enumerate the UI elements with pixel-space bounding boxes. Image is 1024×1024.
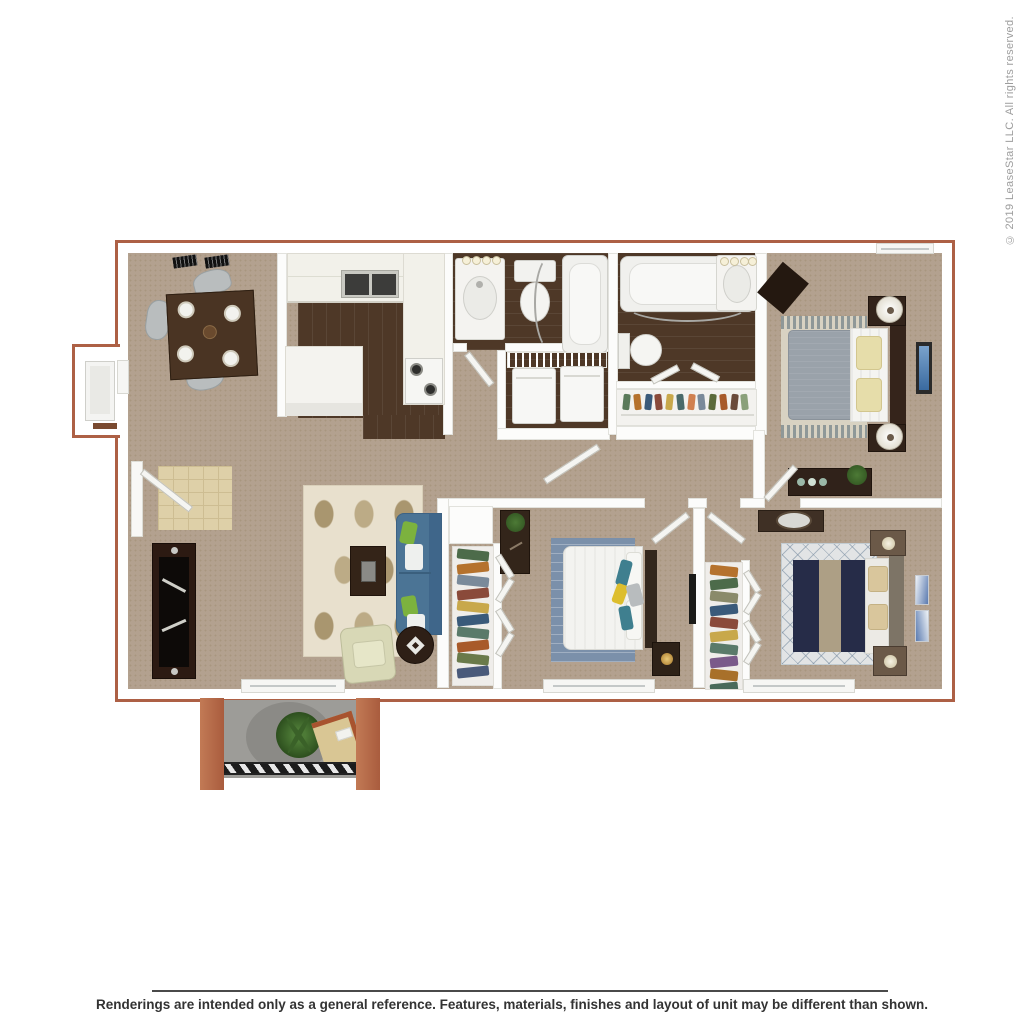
bed-runner: [819, 560, 841, 652]
copyright-text: © 2019 LeaseStar LLC. All rights reserve…: [1004, 16, 1016, 245]
vanity-lights: [482, 256, 491, 265]
vanity-lights: [492, 256, 501, 265]
master-window: [876, 243, 934, 254]
table-lamp: [882, 537, 895, 550]
storage-closet-exterior: [72, 344, 120, 438]
sofa: [396, 513, 442, 635]
footer-divider: [152, 990, 888, 992]
coffee-table: [350, 546, 386, 596]
disclaimer-text: Renderings are intended only as a genera…: [0, 997, 1024, 1012]
shower-curtain-rod: [534, 255, 568, 351]
wall-art: [916, 342, 932, 394]
throw-pillow: [399, 521, 418, 546]
bedroom2-headboard: [645, 550, 657, 648]
bedroom3-bed: [841, 560, 865, 652]
vanity-lights: [730, 257, 739, 266]
plant: [506, 513, 525, 532]
wall-art: [915, 575, 929, 605]
bathtub: [562, 255, 608, 353]
bedroom3-closet: [705, 562, 743, 690]
centerpiece: [202, 325, 217, 340]
patio-sliding-door: [241, 679, 345, 693]
vanity-lights: [720, 257, 729, 266]
closet-sliding-front: [616, 426, 757, 440]
throw-blanket: [405, 544, 423, 570]
plant: [847, 465, 867, 485]
hanging-clothes: [619, 392, 752, 412]
nightstand: [652, 642, 680, 676]
pillow-tan: [868, 604, 888, 630]
nightstand: [870, 530, 906, 556]
kitchen-sink: [341, 270, 399, 298]
vanity-lights: [472, 256, 481, 265]
vanity-lights: [462, 256, 471, 265]
tv-console: [152, 543, 196, 679]
bed2-closet-shelf: [449, 506, 493, 544]
kitchen-peninsula: [285, 346, 363, 416]
master-headboard: [890, 324, 906, 426]
wall: [497, 350, 506, 432]
patio-railing: [222, 762, 358, 775]
side-table: [396, 626, 434, 664]
master-pillow: [856, 378, 882, 412]
toilet-bowl: [630, 334, 662, 366]
nightstand: [873, 646, 907, 676]
stove: [405, 358, 443, 404]
master-bed-blanket: [788, 330, 852, 420]
pillow-tan: [868, 566, 888, 592]
hall-closet: [616, 389, 757, 426]
bedroom3-bed: [793, 560, 819, 652]
floorplan-canvas: [0, 0, 1024, 1024]
wall: [497, 428, 610, 440]
dryer: [560, 366, 604, 422]
washer: [512, 368, 556, 424]
wall: [453, 343, 467, 352]
bedroom2-window: [543, 679, 655, 693]
wall: [616, 381, 757, 389]
patio-brick-wall: [200, 698, 224, 790]
entry-tile: [158, 466, 232, 530]
wall-art: [915, 610, 929, 642]
wall: [688, 498, 707, 508]
dining-table: [166, 290, 258, 380]
bedroom2-closet: [452, 546, 494, 686]
wall: [800, 498, 942, 508]
master-pillow: [856, 336, 882, 370]
patio-brick-wall: [356, 698, 380, 790]
storage-threshold: [93, 423, 117, 429]
table-lamp: [661, 653, 673, 665]
armchair: [339, 623, 397, 684]
wall: [740, 498, 765, 508]
table-lamp: [876, 296, 903, 323]
kitchen-entry-floor: [363, 415, 445, 439]
table-lamp: [876, 423, 903, 450]
vanity-lights: [748, 257, 757, 266]
storage-door: [85, 361, 115, 421]
bedroom3-window: [743, 679, 855, 693]
toilet: [618, 333, 630, 369]
wall-tv: [689, 574, 696, 624]
dining-window: [117, 360, 129, 394]
master-dresser: [788, 468, 872, 496]
bedroom3-headboard: [889, 556, 904, 656]
vanity: [455, 258, 505, 340]
dresser-mirror: [776, 511, 812, 530]
table-lamp: [884, 655, 897, 668]
